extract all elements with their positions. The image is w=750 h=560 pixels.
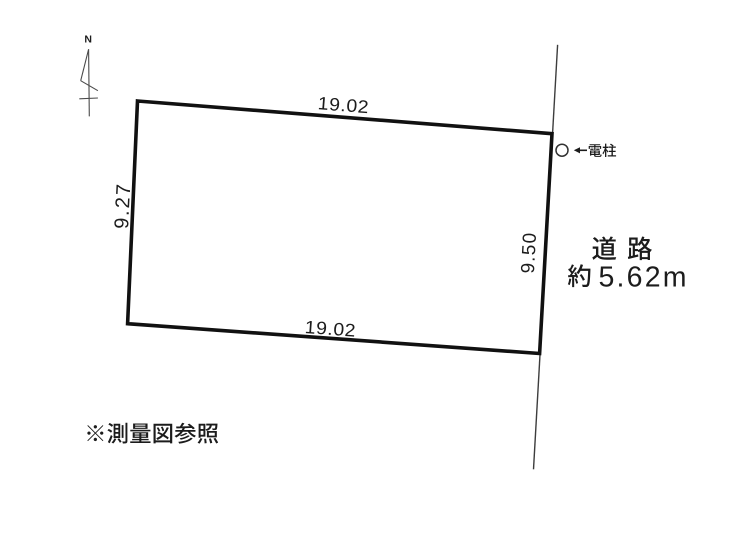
svg-text:9.50: 9.50 [518, 231, 541, 274]
svg-text:N: N [84, 33, 92, 45]
svg-text:5.62m: 5.62m [599, 262, 689, 294]
svg-text:19.02: 19.02 [317, 93, 370, 117]
svg-text:19.02: 19.02 [304, 317, 357, 341]
svg-text:9.27: 9.27 [111, 182, 135, 230]
